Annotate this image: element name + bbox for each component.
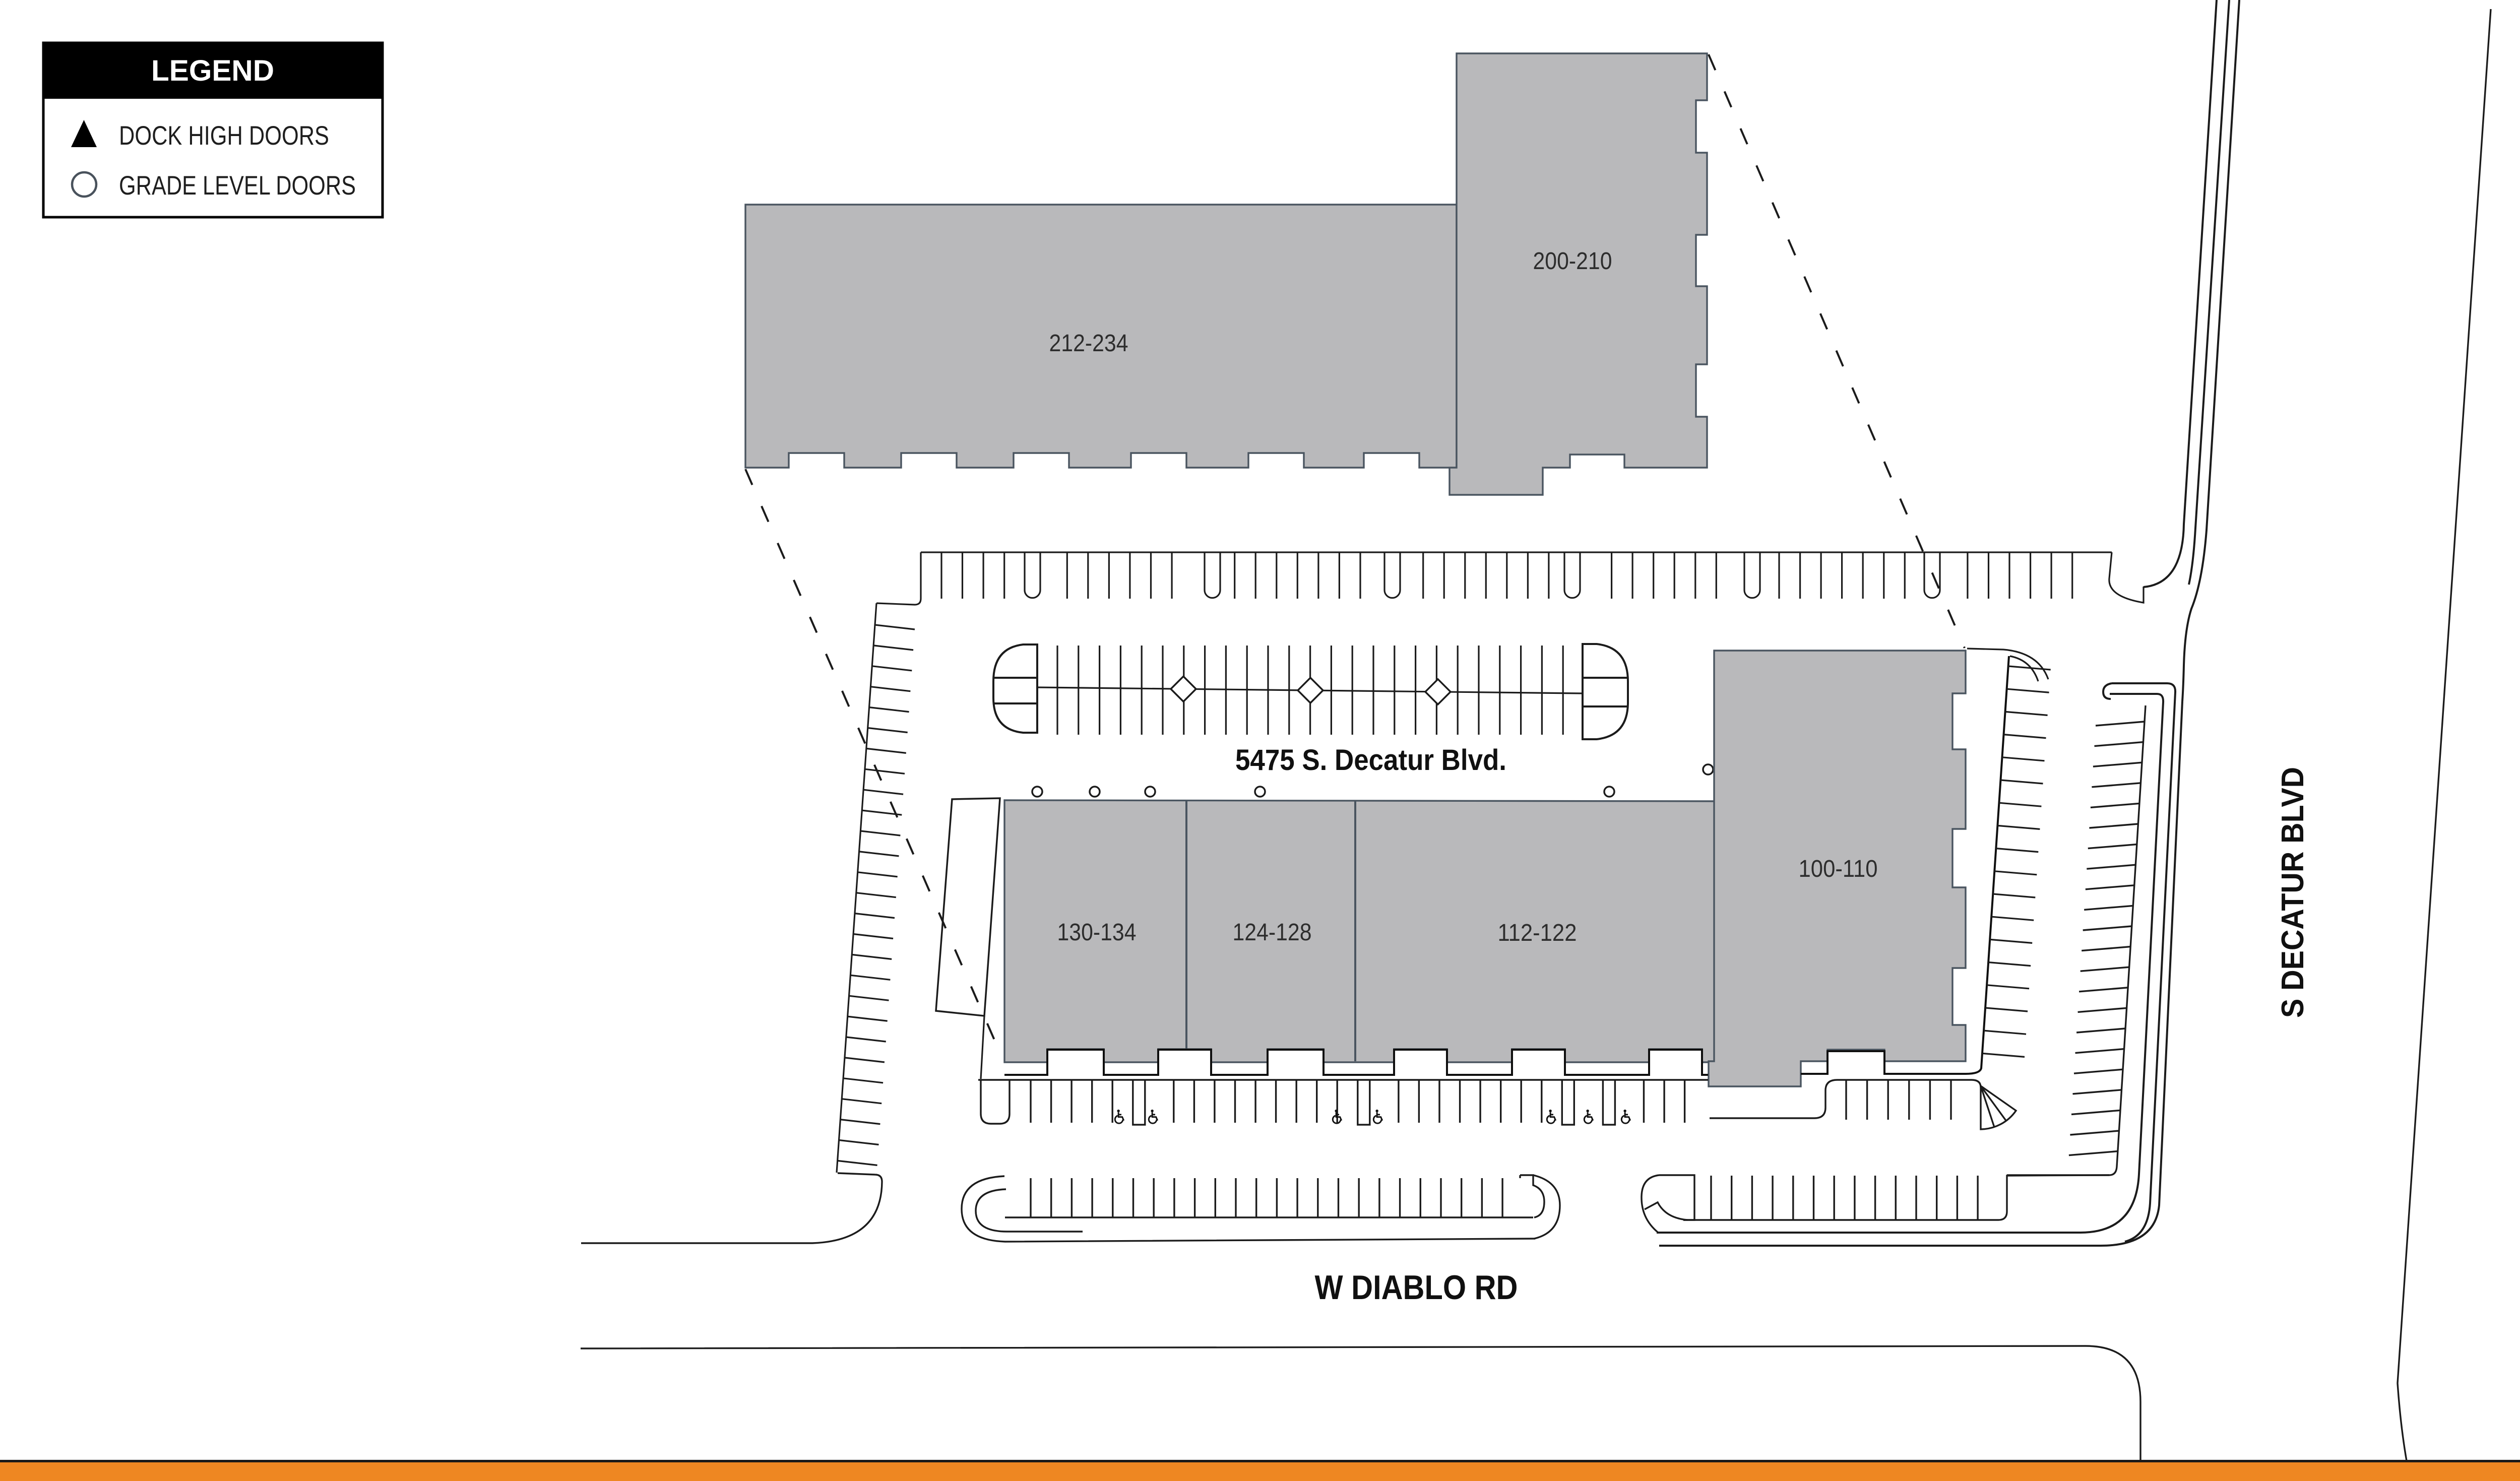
svg-text:LEGEND: LEGEND [151,54,274,87]
svg-text:130-134: 130-134 [1057,919,1137,946]
svg-text:100-110: 100-110 [1799,856,1878,882]
svg-text:124-128: 124-128 [1233,919,1312,946]
svg-text:112-122: 112-122 [1498,920,1577,946]
svg-text:S DECATUR BLVD: S DECATUR BLVD [2276,767,2310,1018]
svg-text:GRADE LEVEL DOORS: GRADE LEVEL DOORS [119,171,356,201]
svg-text:200-210: 200-210 [1533,248,1612,275]
svg-text:W DIABLO RD: W DIABLO RD [1315,1268,1518,1307]
svg-text:212-234: 212-234 [1049,330,1128,357]
svg-text:DOCK HIGH DOORS: DOCK HIGH DOORS [119,121,329,151]
svg-text:5475 S. Decatur Blvd.: 5475 S. Decatur Blvd. [1235,744,1506,777]
